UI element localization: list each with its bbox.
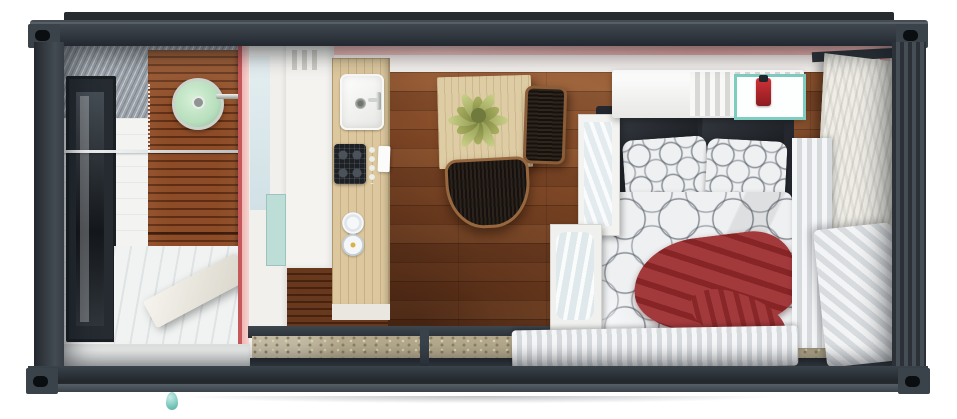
cabinet-vent-slots	[292, 50, 320, 70]
gas-stove	[334, 144, 366, 184]
top-rail-highlight	[30, 22, 928, 24]
container-left-wall	[34, 42, 64, 372]
partition-wall-pink-edge	[242, 46, 249, 348]
shower-glass-edge	[148, 84, 153, 152]
plant-pot	[471, 108, 486, 123]
shower-glass-partition	[62, 150, 248, 153]
container-home-render	[0, 0, 957, 419]
wall-cut-edge-pink	[240, 46, 894, 55]
faucet-spout	[368, 98, 378, 102]
glass-wall-mullion	[420, 328, 429, 368]
shower-head-center	[192, 96, 205, 109]
casting-hole	[905, 376, 920, 387]
plate-stack	[342, 212, 364, 234]
window-reflection	[80, 96, 89, 322]
bathroom-bottom-sill	[62, 344, 250, 368]
teal-panel	[266, 194, 286, 266]
bowl-with-cup	[342, 234, 364, 256]
kitchen-towel	[378, 146, 391, 172]
dining-chair-east	[523, 85, 568, 164]
wood-slat-seam	[148, 232, 240, 235]
extinguisher-valve	[759, 75, 768, 82]
glass-wall-curtain	[512, 326, 799, 371]
container-right-wall	[892, 42, 926, 372]
casting-hole	[33, 376, 48, 387]
casting-hole	[903, 30, 918, 41]
fire-extinguisher	[756, 78, 771, 106]
drawer-linens	[584, 122, 612, 226]
potted-plant	[450, 88, 514, 152]
sink-drain	[355, 98, 366, 109]
stove-knobs	[368, 146, 376, 184]
drawer-cushion	[556, 232, 594, 320]
casting-hole	[35, 30, 50, 41]
ground-shadow	[80, 396, 880, 406]
counter-end-panel	[332, 304, 390, 320]
bottom-rail-lip	[44, 384, 912, 392]
kitchen-cabinet-column	[286, 44, 334, 268]
shower-glass-band	[250, 56, 270, 210]
